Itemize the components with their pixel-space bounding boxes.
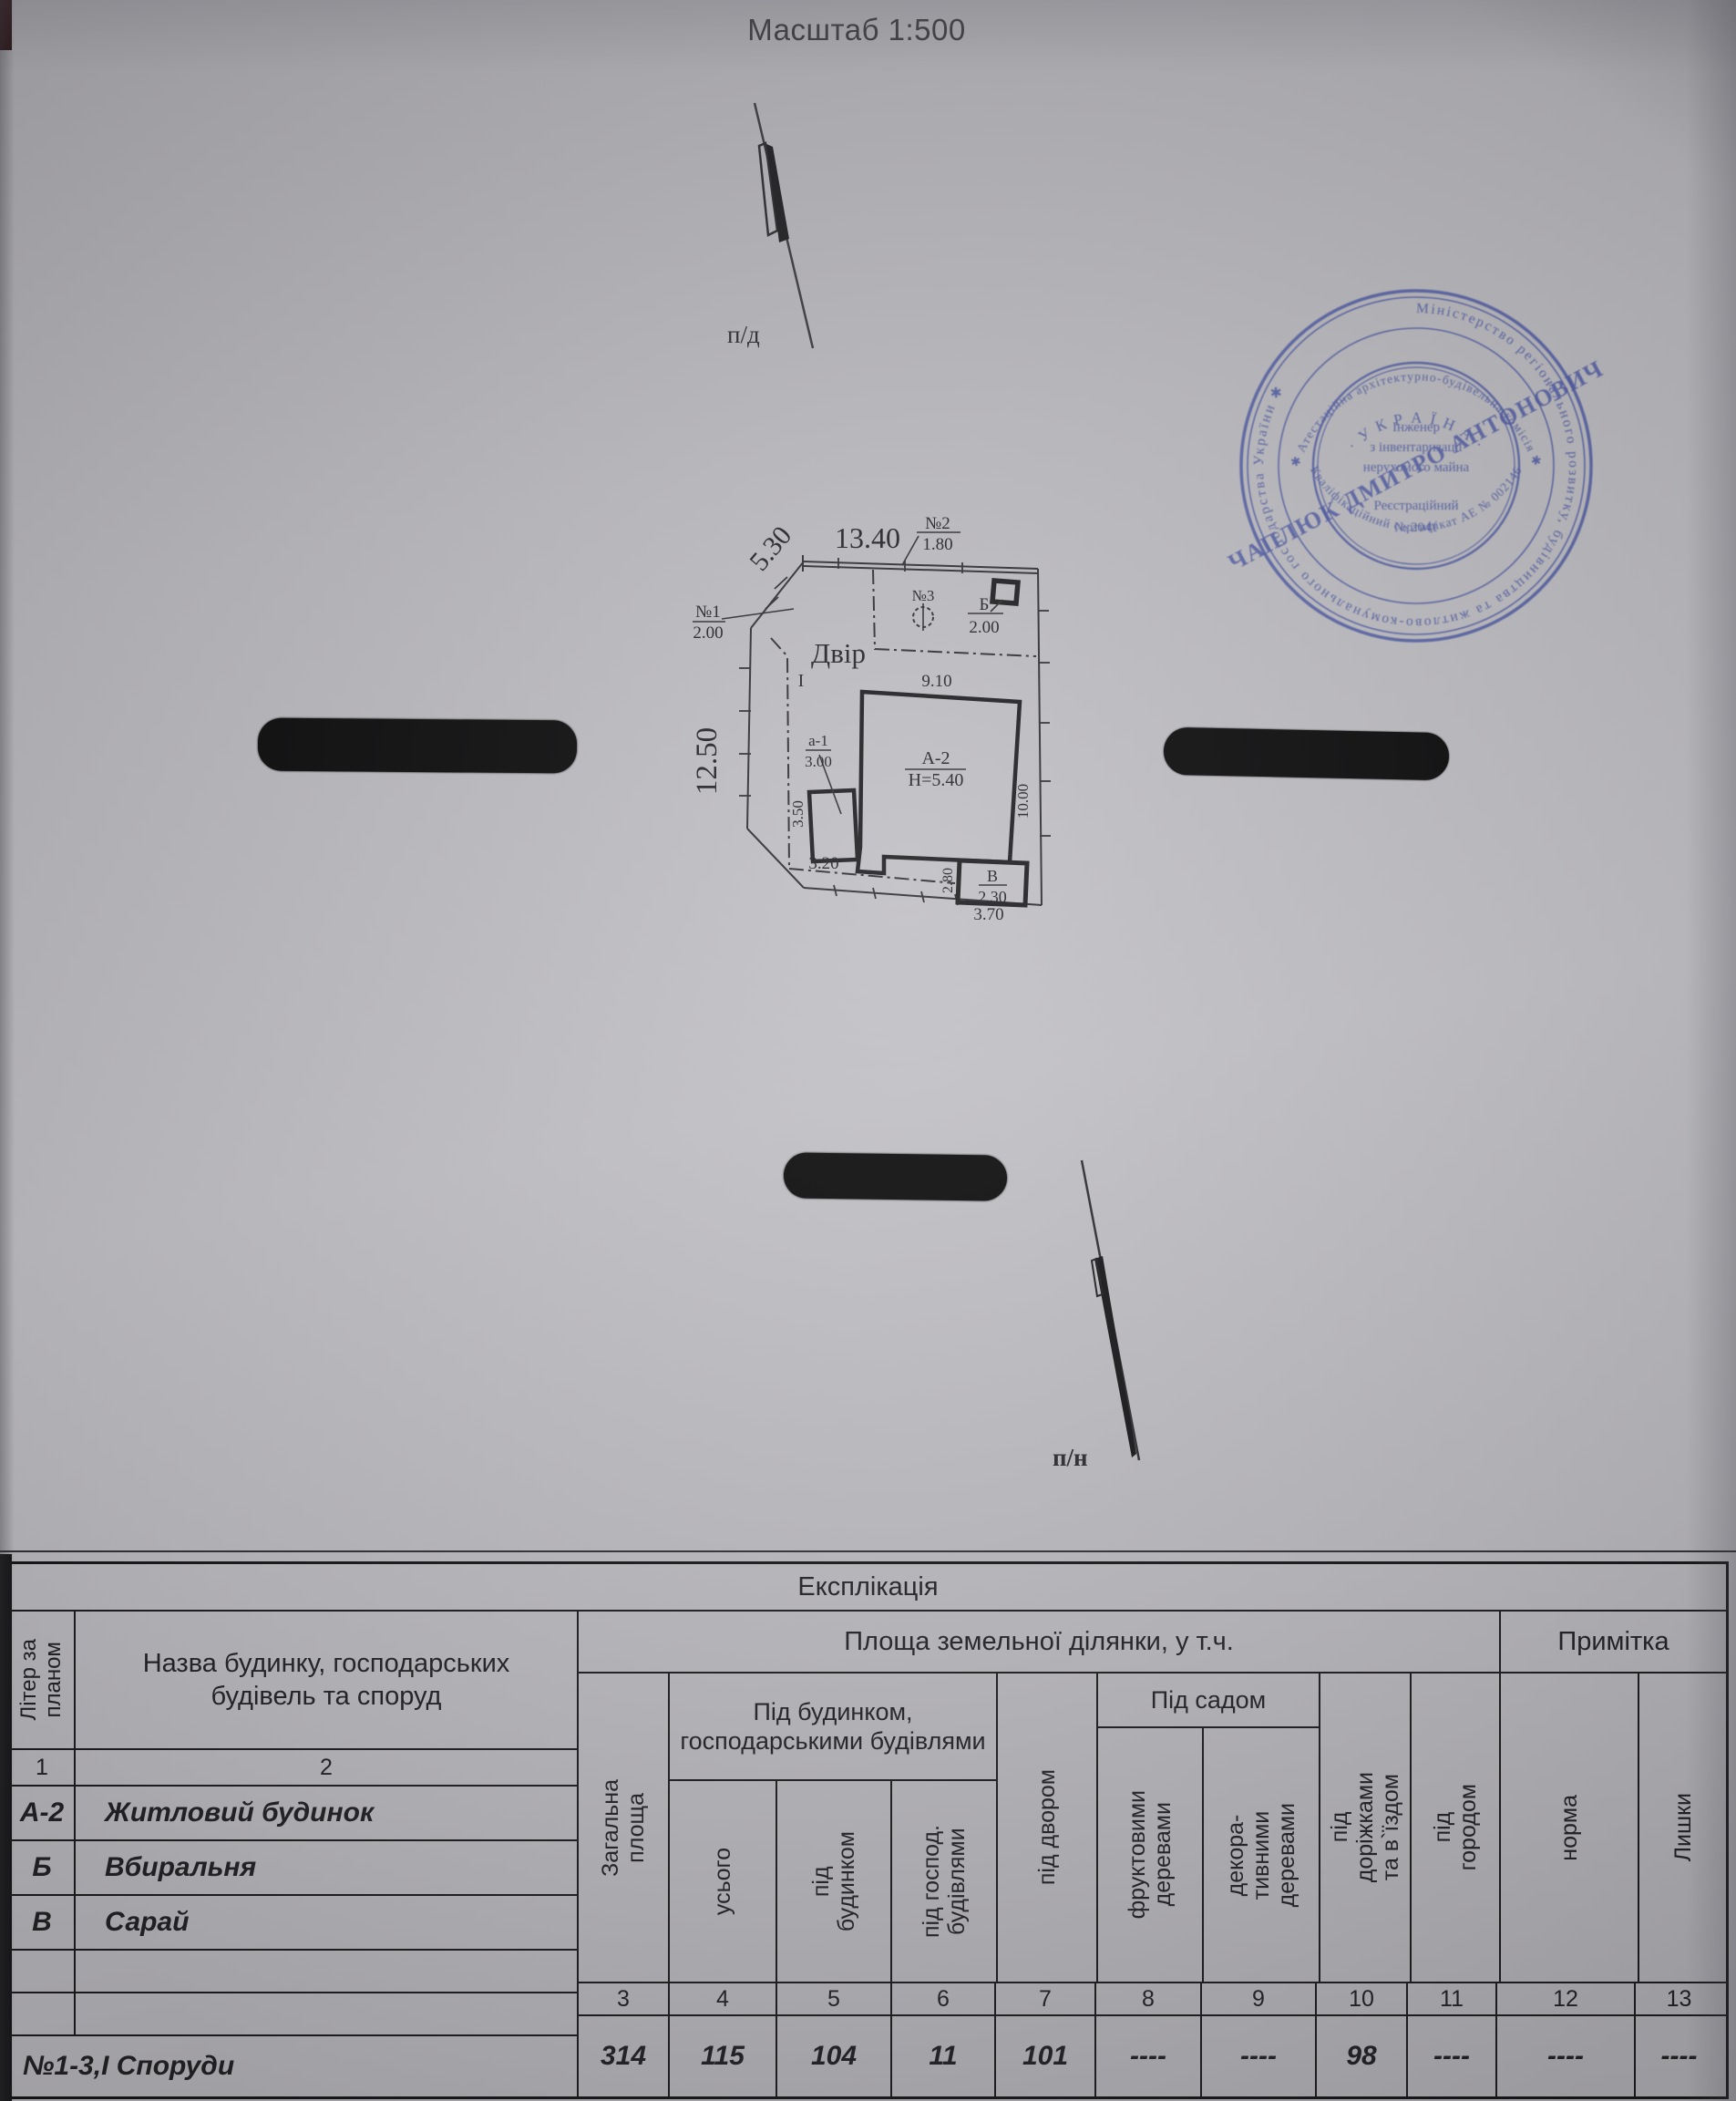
annex-value: 3.00 — [805, 753, 832, 770]
col6-label: під господ. будівлями — [919, 1825, 970, 1938]
col-number: 3 — [579, 1983, 670, 2014]
col-number: 8 — [1096, 1983, 1202, 2014]
leaders-and-bars — [693, 532, 1007, 885]
annex-label: а-1 — [808, 732, 828, 749]
section-marker: I — [798, 671, 805, 691]
total-row-label: №1-3,І Споруди — [10, 2036, 577, 2096]
col4-label: усього — [710, 1848, 735, 1915]
round-stamp: Міністерство регіонального розвитку, буд… — [1225, 279, 1608, 653]
total-value: 314 — [579, 2016, 670, 2096]
stamp-texts: Міністерство регіонального розвитку, буд… — [1225, 301, 1608, 631]
col-number: 4 — [670, 1983, 777, 2014]
total-value: ---- — [1096, 2016, 1202, 2096]
dim-10-00: 10.00 — [1014, 784, 1032, 819]
column-numbers-row: 3 4 5 6 7 8 9 10 11 12 13 — [579, 1982, 1726, 2014]
col9-label: декора- тивними деревами — [1223, 1803, 1299, 1907]
point2-label: №2 — [925, 514, 950, 533]
house-height: Н=5.40 — [909, 770, 964, 790]
table-row: В Сарай — [10, 1896, 577, 1951]
table-row: Б Вбиральня — [10, 1841, 577, 1896]
total-value: 115 — [670, 2016, 777, 2096]
explication-table: Експлікація Літер за планом Назва будинк… — [7, 1561, 1729, 2099]
col1-number: 1 — [10, 1750, 76, 1785]
row-name: Сарай — [76, 1896, 577, 1949]
house-label: А-2 — [921, 748, 950, 768]
col11-label: під городом — [1430, 1784, 1481, 1870]
table-title: Експлікація — [10, 1564, 1726, 1612]
col-number: 11 — [1408, 1983, 1497, 2014]
total-value: ---- — [1202, 2016, 1317, 2096]
note-header: Примітка — [1501, 1612, 1726, 1672]
outhouse-outline — [992, 581, 1018, 603]
annex-outline — [809, 790, 858, 861]
row-liter: А-2 — [10, 1787, 76, 1839]
total-value: ---- — [1497, 2016, 1636, 2096]
total-value: 98 — [1317, 2016, 1408, 2096]
scanned-document-page: Масштаб 1:500 п/д п/н — [0, 0, 1736, 2101]
point2-value: 1.80 — [922, 535, 952, 554]
scan-corner-mark — [0, 0, 12, 50]
redaction-bar-right — [1163, 727, 1449, 781]
north-arrow-bottom — [1048, 1148, 1176, 1477]
site-plan-drawing: 13.40 5.30 №2 1.80 №1 2.00 №3 Б 2.00 Дві… — [656, 492, 1121, 1021]
col-number: 9 — [1202, 1983, 1317, 2014]
outhouse-value: 2.00 — [969, 618, 999, 637]
row-liter: В — [10, 1896, 76, 1949]
col8-label: фруктовими деревами — [1125, 1790, 1176, 1919]
dim-13-40: 13.40 — [835, 521, 900, 554]
dim-3-50: 3.50 — [789, 800, 806, 828]
col2-number: 2 — [76, 1750, 577, 1785]
col7-label: під двором — [1034, 1769, 1060, 1885]
shed-value: 2.30 — [978, 888, 1007, 906]
dim-3-70: 3.70 — [973, 905, 1003, 924]
row-liter: Б — [10, 1841, 76, 1894]
shed-label: В — [987, 867, 998, 885]
outhouse-label: Б — [980, 595, 990, 614]
point3-symbol — [913, 603, 933, 631]
col13-label: Лишки — [1670, 1793, 1696, 1861]
north-top-label: п/д — [727, 321, 760, 349]
total-value: ---- — [1408, 2016, 1497, 2096]
dim-2-80: 2.80 — [940, 868, 956, 893]
stamp-center-line4: Реєстраційний — [1373, 499, 1458, 513]
row-name: Житловий будинок — [76, 1787, 577, 1839]
table-right-section: Площа земельної ділянки, у т.ч. Примітка… — [579, 1612, 1726, 2096]
total-value: 104 — [777, 2016, 892, 2096]
point3-label: №3 — [912, 587, 935, 604]
col-number: 7 — [996, 1983, 1096, 2014]
col-number: 6 — [892, 1983, 996, 2014]
table-row-empty — [10, 1951, 577, 1993]
col-number: 5 — [777, 1983, 892, 2014]
group-garden-header: Під садом — [1098, 1674, 1319, 1728]
needle-fill — [766, 144, 789, 242]
col10-label: під доріжками та в`їздом — [1327, 1772, 1403, 1882]
total-value: ---- — [1636, 2016, 1722, 2096]
point1-value: 2.00 — [693, 623, 723, 643]
area-header: Площа земельної ділянки, у т.ч. — [579, 1612, 1501, 1672]
table-left-section: Літер за планом Назва будинку, господарс… — [10, 1612, 579, 2096]
totals-values-row: 314 115 104 11 101 ---- ---- 98 ---- ---… — [579, 2014, 1726, 2096]
total-value: 101 — [996, 2016, 1096, 2096]
dim-12-50: 12.50 — [691, 727, 724, 795]
stamp-center-line5: № 2041 — [1394, 520, 1438, 535]
col5-label: під будинком — [808, 1831, 859, 1931]
table-row: А-2 Житловий будинок — [10, 1787, 577, 1841]
dim-9-10: 9.10 — [921, 672, 951, 691]
stamp-center-line1: Інженер — [1392, 420, 1440, 435]
row-name: Вбиральня — [76, 1841, 577, 1894]
point1-label: №1 — [695, 602, 721, 622]
col-number: 13 — [1636, 1983, 1722, 2014]
total-value: 11 — [892, 2016, 996, 2096]
col1-header: Літер за планом — [17, 1639, 67, 1721]
col12-label: норма — [1556, 1795, 1582, 1861]
col-number: 12 — [1497, 1983, 1636, 2014]
redaction-bar-left — [258, 717, 577, 773]
table-top-rule — [0, 1550, 1736, 1552]
dim-3-20: 3.20 — [808, 854, 838, 873]
yard-label: Двір — [811, 637, 866, 669]
col2-header: Назва будинку, господарських будівель та… — [76, 1612, 577, 1748]
redaction-bar-bottom — [784, 1152, 1008, 1200]
scale-label: Масштаб 1:500 — [747, 13, 966, 47]
table-row-empty — [10, 1993, 577, 2036]
dim-5-30: 5.30 — [744, 520, 797, 576]
group-house-header: Під будинком, господарськими будівлями — [670, 1674, 996, 1781]
north-bottom-label: п/н — [1053, 1444, 1088, 1472]
col3-label: Загальна площа — [598, 1779, 649, 1877]
col-number: 10 — [1317, 1983, 1408, 2014]
parcel-boundary — [747, 555, 1042, 905]
